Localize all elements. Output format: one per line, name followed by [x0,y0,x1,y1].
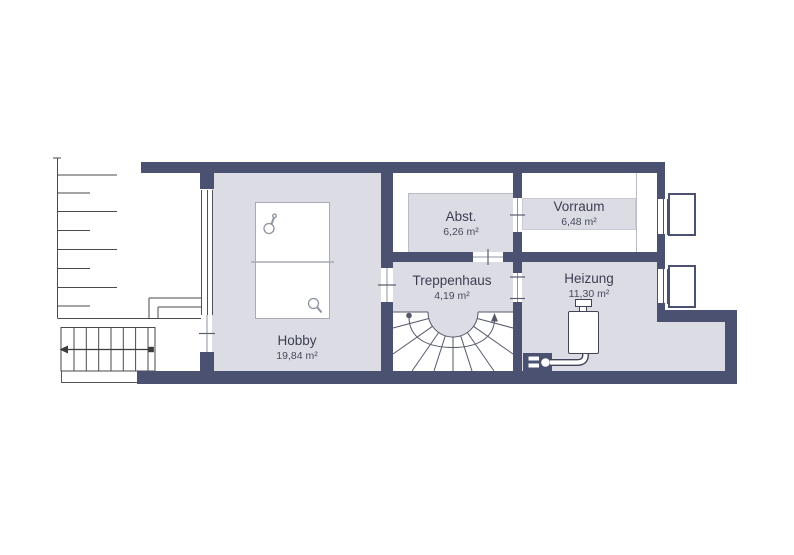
room-label-hobby: Hobby 19,84 m² [276,333,317,362]
linework-layer [0,0,794,555]
table-tennis-paddle-icon [264,214,276,234]
room-label-treppenhaus: Treppenhaus 4,19 m² [412,273,491,302]
bottom-wall [137,371,737,384]
hobby-right-wall-lower [381,302,393,371]
room-name: Treppenhaus [412,273,491,289]
right-wall-b [657,234,665,269]
room-name: Hobby [276,333,317,349]
hobby-right-wall-upper [381,173,393,268]
terrace-steps [58,298,201,319]
cross-wall-right [503,252,657,262]
mid-wall-b [513,232,522,252]
hobby-left-pillar-bottom [200,352,214,371]
exterior-staircase [60,328,156,372]
room-area: 19,84 m² [276,350,317,363]
room-area: 6,48 m² [553,216,604,229]
room-label-abstellraum: Abst. 6,26 m² [443,209,479,238]
right-wall-lower [725,310,737,384]
table-tennis-paddle-icon [309,299,322,313]
electric-meter-detail [529,357,550,368]
room-name: Vorraum [553,199,604,215]
mid-wall-a [513,173,522,198]
room-name: Heizung [564,271,614,287]
room-label-heizung: Heizung 11,30 m² [564,271,614,300]
stair-walkline-start-dot [406,313,412,319]
winder-staircase [393,312,513,371]
floor-plan: Hobby 19,84 m² Treppenhaus 4,19 m² Abst.… [0,0,794,555]
right-wall-a [657,173,665,199]
top-wall [141,162,665,173]
room-label-vorraum: Vorraum 6,48 m² [553,199,604,228]
mid-wall-c [513,262,522,273]
room-area: 11,30 m² [564,288,614,301]
room-area: 6,26 m² [443,226,479,239]
cross-wall-left [393,252,473,262]
room-area: 4,19 m² [412,290,491,303]
mid-wall-d [513,302,522,371]
boiler-body [568,311,599,354]
hobby-left-pillar-top [200,173,214,189]
terrace-hatching [53,158,117,319]
room-name: Abst. [443,209,479,225]
